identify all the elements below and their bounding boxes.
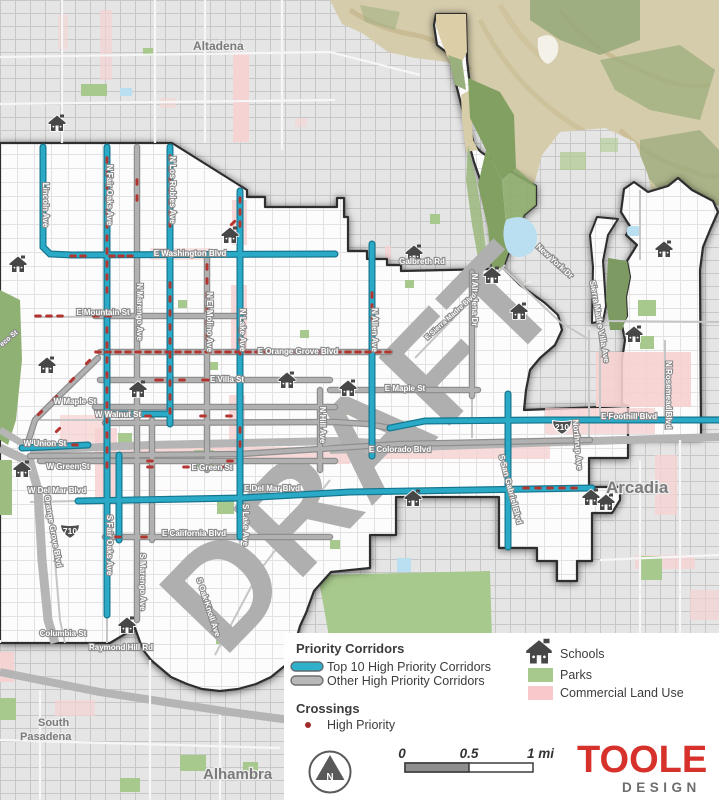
svg-text:E Foothill Blvd: E Foothill Blvd <box>601 412 657 421</box>
svg-text:N El Molino Ave: N El Molino Ave <box>205 292 214 352</box>
svg-text:Altadena: Altadena <box>193 39 244 53</box>
svg-text:N: N <box>326 772 333 783</box>
svg-text:Crossings: Crossings <box>296 701 360 716</box>
svg-text:N Lake Ave: N Lake Ave <box>238 309 247 352</box>
svg-text:Galbreth Rd: Galbreth Rd <box>399 257 445 266</box>
svg-text:Parks: Parks <box>560 668 592 682</box>
svg-text:1 mi: 1 mi <box>527 746 554 761</box>
svg-text:High Priority: High Priority <box>327 718 396 732</box>
svg-text:N Marengo Ave: N Marengo Ave <box>135 283 144 341</box>
svg-text:South: South <box>38 717 69 729</box>
svg-text:Other High Priority Corridors: Other High Priority Corridors <box>327 674 485 688</box>
svg-text:Priority Corridors: Priority Corridors <box>296 641 404 656</box>
svg-text:W Del Mar Blvd: W Del Mar Blvd <box>28 486 86 495</box>
svg-text:W Union St: W Union St <box>24 439 67 448</box>
svg-text:W Maple St: W Maple St <box>54 397 97 406</box>
svg-text:DESIGN: DESIGN <box>622 780 701 795</box>
svg-text:W Walnut St: W Walnut St <box>95 410 142 419</box>
svg-text:E Maple St: E Maple St <box>385 384 426 393</box>
svg-text:N Allen Ave: N Allen Ave <box>370 308 379 352</box>
svg-text:S Marengo Ave: S Marengo Ave <box>138 553 147 611</box>
svg-text:E Orange Grove Blvd: E Orange Grove Blvd <box>258 347 339 356</box>
svg-text:Schools: Schools <box>560 647 604 661</box>
svg-text:Pasadena: Pasadena <box>20 731 72 743</box>
svg-text:710: 710 <box>63 526 77 536</box>
svg-text:Columbia St: Columbia St <box>40 629 87 638</box>
svg-text:E California Blvd: E California Blvd <box>162 529 226 538</box>
svg-text:N Los Robles Ave: N Los Robles Ave <box>168 156 177 224</box>
svg-text:E Washington Blvd: E Washington Blvd <box>154 249 227 258</box>
svg-text:Raymond Hill Rd: Raymond Hill Rd <box>89 643 153 652</box>
svg-text:W Green St: W Green St <box>46 462 89 471</box>
svg-text:Alhambra: Alhambra <box>203 766 273 783</box>
svg-text:E Mountain St: E Mountain St <box>76 308 130 317</box>
svg-text:N Hill Ave: N Hill Ave <box>318 407 327 444</box>
svg-text:S Fair Oaks Ave: S Fair Oaks Ave <box>105 515 114 576</box>
svg-text:N Fair Oaks Ave: N Fair Oaks Ave <box>105 165 114 226</box>
svg-text:210: 210 <box>555 422 569 432</box>
svg-text:0.5: 0.5 <box>460 746 479 761</box>
svg-text:0: 0 <box>398 746 406 761</box>
svg-text:Commercial Land Use: Commercial Land Use <box>560 686 684 700</box>
svg-text:Arcadia: Arcadia <box>606 478 669 497</box>
svg-text:E Villa St: E Villa St <box>210 375 244 384</box>
svg-text:N Rosemead Blvd: N Rosemead Blvd <box>664 361 673 429</box>
svg-text:S Lake Ave: S Lake Ave <box>241 504 250 547</box>
svg-text:E Green St: E Green St <box>192 463 233 472</box>
svg-text:E Del Mar Blvd: E Del Mar Blvd <box>244 484 300 493</box>
svg-text:Top 10 High Priority Corridors: Top 10 High Priority Corridors <box>327 660 491 674</box>
svg-text:Lincoln Ave: Lincoln Ave <box>41 183 50 228</box>
svg-text:TOOLE: TOOLE <box>577 739 707 781</box>
svg-text:E Colorado Blvd: E Colorado Blvd <box>369 445 431 454</box>
